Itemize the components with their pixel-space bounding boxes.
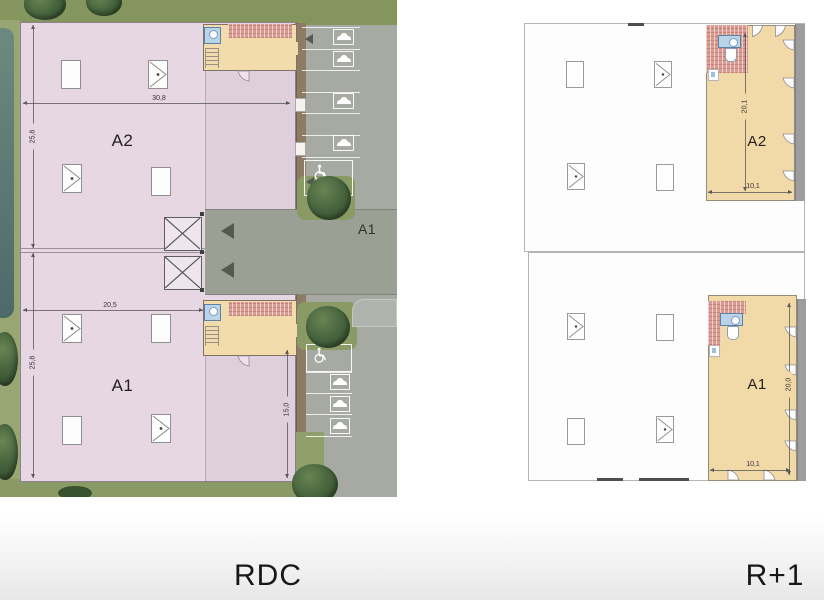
tree-icon <box>306 306 350 348</box>
unit-label-a1: A1 <box>741 376 773 393</box>
wc-chip <box>708 69 719 81</box>
water-body <box>0 28 14 318</box>
wheelchair-icon <box>313 347 328 364</box>
door-opening <box>294 42 298 55</box>
parking-stall-line <box>302 157 360 158</box>
walkway-strip <box>797 299 806 481</box>
direction-arrow-icon <box>221 223 234 239</box>
bush-icon <box>58 486 92 497</box>
door-jamb <box>200 250 204 254</box>
dimension-line <box>23 103 290 104</box>
door-swing-icon <box>783 40 795 51</box>
unit-label-a1: A1 <box>100 376 145 396</box>
skylight-icon <box>656 416 674 443</box>
dimension-label: 25,8 <box>30 350 37 376</box>
door-swing-icon <box>783 171 795 182</box>
dimension-label: 15,0 <box>284 397 291 423</box>
door-swing-icon <box>785 327 797 338</box>
rdc-title: RDC <box>193 559 343 593</box>
walkway-strip <box>795 24 805 201</box>
stairs-icon <box>205 48 219 68</box>
wc-sink <box>720 313 743 326</box>
tree-icon <box>292 464 338 497</box>
window-icon <box>148 60 168 89</box>
door-swing-icon <box>752 25 763 37</box>
tree-icon <box>307 176 351 220</box>
window-icon <box>151 414 171 443</box>
parking-stall-line <box>302 49 360 50</box>
wc-chip <box>709 345 720 357</box>
door-swing-icon <box>238 71 250 82</box>
window-icon <box>61 60 81 89</box>
dimension-label: 20,1 <box>742 94 749 120</box>
door-threshold <box>597 478 623 481</box>
dimension-label: 10,1 <box>740 461 766 468</box>
dock-door-icon <box>164 217 202 251</box>
r1-title: R+1 <box>700 559 824 593</box>
parking-stall-line <box>306 414 352 415</box>
stairs-hatch <box>228 24 292 38</box>
floor-plan-sheet: 30,8 25,8 20,5 25,8 15,0 A2 A1 A1 <box>0 0 824 600</box>
toilet <box>725 48 737 62</box>
door-swing-icon <box>775 25 786 37</box>
wc-sink <box>204 27 221 44</box>
car-icon <box>333 93 354 109</box>
unit-label-a2: A2 <box>741 133 773 150</box>
toilet <box>727 326 739 340</box>
unit-label-a2: A2 <box>100 131 145 151</box>
window-icon <box>62 164 82 193</box>
wing-tint-a1 <box>205 355 296 482</box>
parking-stall-line <box>302 113 360 114</box>
door-opening <box>295 142 306 156</box>
dimension-line <box>708 192 792 193</box>
parking-stall-line <box>306 436 352 437</box>
door-swing-icon <box>783 78 795 89</box>
parking-stall-line <box>302 27 360 28</box>
parking-stall-line <box>306 393 352 394</box>
skylight-icon <box>656 164 674 191</box>
skylight-icon <box>654 61 672 88</box>
car-icon <box>333 29 354 45</box>
door-swing-icon <box>764 470 776 481</box>
door-swing-icon <box>785 441 797 452</box>
dimension-label: 30,8 <box>146 95 172 102</box>
stairs-icon <box>205 326 219 346</box>
concrete-pad <box>352 299 397 327</box>
dimension-label: 20,5 <box>97 302 123 309</box>
skylight-icon <box>567 163 585 190</box>
dimension-line <box>710 470 790 471</box>
window-icon <box>62 314 82 343</box>
wing-wall-line <box>205 355 206 482</box>
parking-stall-line <box>302 70 360 71</box>
dimension-label: 10,1 <box>740 183 766 190</box>
direction-arrow-icon <box>305 34 313 44</box>
skylight-icon <box>567 313 585 340</box>
window-icon <box>62 416 82 445</box>
skylight-icon <box>566 61 584 88</box>
r1-floor-plan: 20,1 10,1 A2 20,0 10,1 A1 <box>524 23 806 481</box>
parking-zone-label: A1 <box>346 221 388 237</box>
door-swing-icon <box>238 356 250 367</box>
door-opening <box>295 98 306 112</box>
dimension-label: 20,0 <box>786 372 793 398</box>
rdc-site-plan: 30,8 25,8 20,5 25,8 15,0 A2 A1 A1 <box>0 0 397 497</box>
window-icon <box>151 167 171 196</box>
stairs-hatch <box>228 302 292 316</box>
car-icon <box>333 51 354 67</box>
door-jamb <box>200 212 204 216</box>
door-threshold <box>639 478 689 481</box>
door-jamb <box>200 288 204 292</box>
skylight-icon <box>567 418 585 445</box>
car-icon <box>333 135 354 151</box>
door-threshold <box>628 23 644 26</box>
door-swing-icon <box>728 470 740 481</box>
car-icon <box>330 418 350 434</box>
dock-door-icon <box>164 256 202 290</box>
car-icon <box>330 396 350 412</box>
skylight-icon <box>656 314 674 341</box>
car-icon <box>330 374 350 390</box>
door-swing-icon <box>783 134 795 145</box>
dimension-label: 25,8 <box>30 124 37 150</box>
wc-sink <box>204 304 221 321</box>
window-icon <box>151 314 171 343</box>
wc-sink <box>718 35 741 48</box>
direction-arrow-icon <box>221 262 234 278</box>
parking-stall-line <box>306 372 352 373</box>
door-swing-icon <box>785 410 797 421</box>
dimension-line <box>23 310 203 311</box>
